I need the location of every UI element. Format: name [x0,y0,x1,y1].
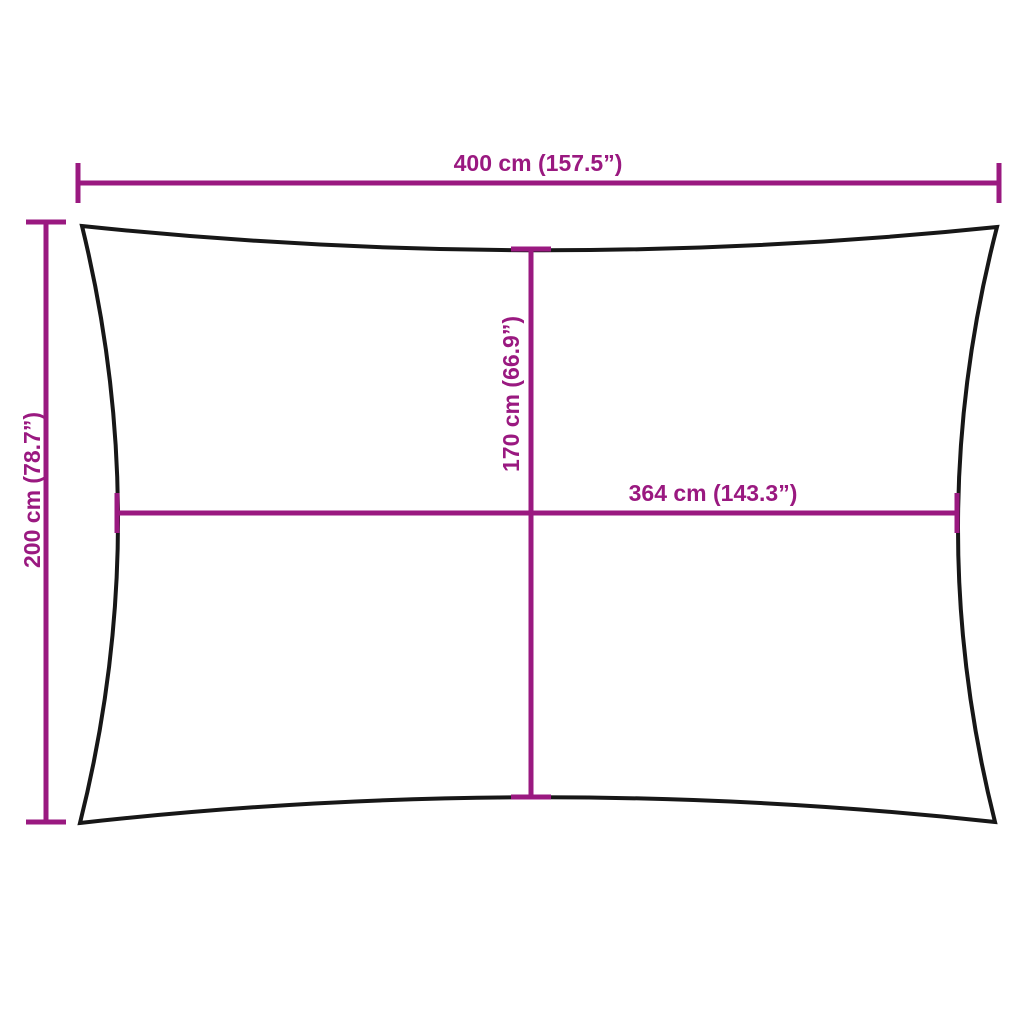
dimension-center-height: 170 cm (66.9”) [498,249,551,797]
dimension-label-left-height: 200 cm (78.7”) [19,412,45,568]
dimension-label-center-height: 170 cm (66.9”) [498,316,524,472]
dimension-diagram: 400 cm (157.5”) 200 cm (78.7”) 170 cm (6… [0,0,1024,1024]
dimension-center-width: 364 cm (143.3”) [117,480,957,533]
diagram-canvas: 400 cm (157.5”) 200 cm (78.7”) 170 cm (6… [0,0,1024,1024]
dimension-label-top-width: 400 cm (157.5”) [454,150,623,176]
dimension-top-width: 400 cm (157.5”) [78,150,999,203]
sail-outline [80,226,997,823]
dimension-label-center-width: 364 cm (143.3”) [629,480,798,506]
dimension-left-height: 200 cm (78.7”) [19,222,66,822]
